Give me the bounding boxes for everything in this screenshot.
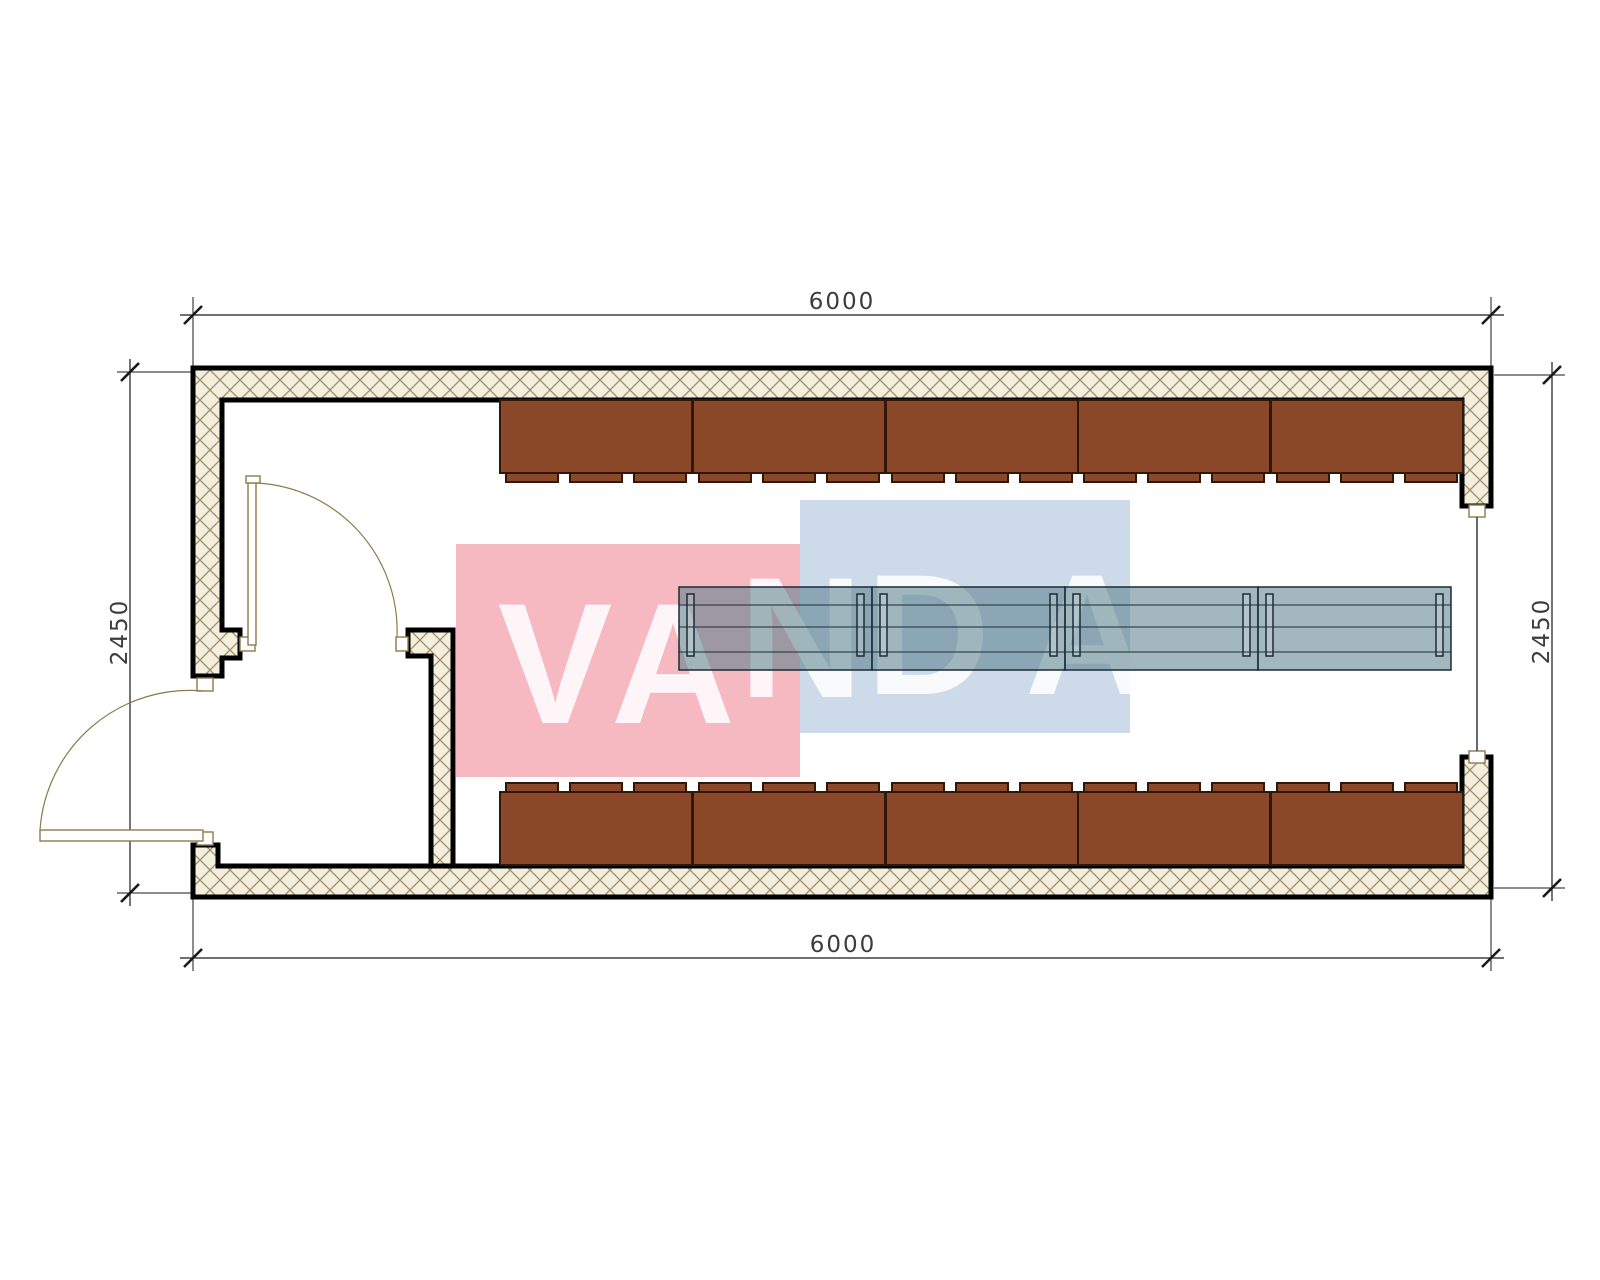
locker-row-top <box>500 400 1463 482</box>
watermark-letter: V <box>498 568 613 760</box>
interior-door-leaf-cap <box>246 476 260 483</box>
exterior-door-swing-arc <box>40 690 203 830</box>
locker-unit <box>693 783 885 865</box>
table-row <box>679 587 1451 670</box>
locker-unit <box>1271 783 1463 865</box>
exterior-door <box>40 690 203 841</box>
exterior-door-jamb-top <box>197 678 213 691</box>
locker-unit <box>500 783 692 865</box>
interior-door-jamb-right <box>396 637 408 651</box>
table-unit <box>872 587 1065 670</box>
dimension-label-top: 6000 <box>809 289 876 315</box>
table-unit <box>1258 587 1451 670</box>
locker-unit <box>1078 783 1270 865</box>
locker-unit <box>886 783 1078 865</box>
dimension-label-right: 2450 <box>1529 598 1555 665</box>
locker-row-bottom <box>500 783 1463 865</box>
dimension-label-bottom: 6000 <box>810 932 877 958</box>
locker-unit <box>1271 400 1463 482</box>
table-unit <box>1065 587 1258 670</box>
interior-door-swing-arc <box>256 483 397 637</box>
exterior-door-leaf <box>40 830 203 841</box>
floor-plan-drawing: 6000 6000 2450 2450 <box>0 0 1600 1280</box>
window-jamb-top <box>1469 505 1485 517</box>
window-jamb-bottom <box>1469 751 1485 763</box>
interior-door <box>246 476 397 645</box>
floor-plan-page: 6000 6000 2450 2450 <box>0 0 1600 1280</box>
wall-partition-vestibule <box>408 630 453 866</box>
locker-unit <box>693 400 885 482</box>
locker-unit <box>886 400 1078 482</box>
locker-unit <box>1078 400 1270 482</box>
dimension-label-left: 2450 <box>107 599 133 666</box>
locker-unit <box>500 400 692 482</box>
interior-door-leaf <box>248 483 256 645</box>
table-unit <box>679 587 872 670</box>
